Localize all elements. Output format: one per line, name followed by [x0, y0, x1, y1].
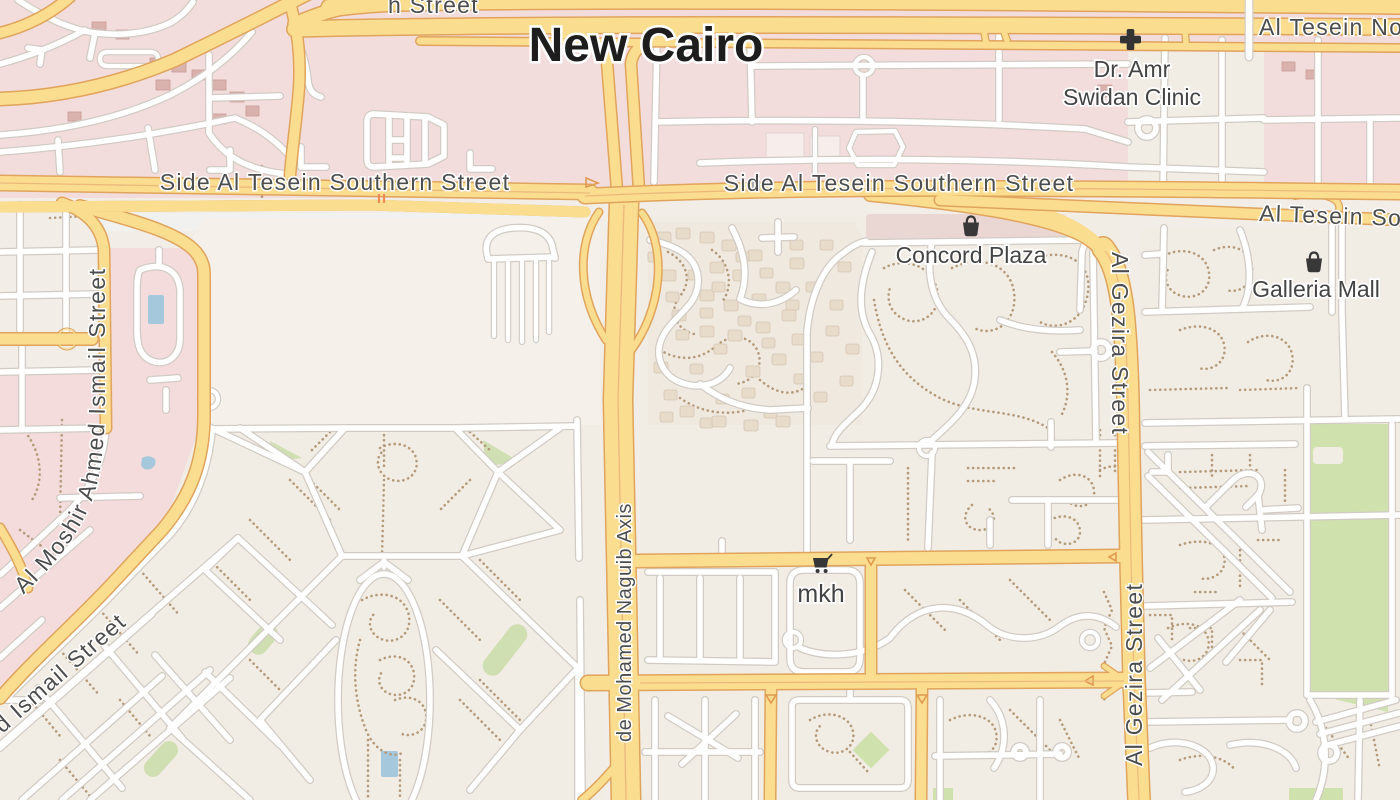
- svg-text:Galleria Mall: Galleria Mall: [1252, 276, 1380, 302]
- svg-text:Al Gezira Street: Al Gezira Street: [1107, 252, 1133, 435]
- svg-text:Dr. Amr: Dr. Amr: [1094, 56, 1171, 82]
- svg-text:Concord Plaza: Concord Plaza: [896, 242, 1047, 268]
- svg-text:h Street: h Street: [388, 0, 479, 18]
- svg-text:Side Al Tesein Southern Street: Side Al Tesein Southern Street: [160, 169, 511, 195]
- svg-text:New Cairo: New Cairo: [529, 19, 764, 72]
- svg-text:Al Gezira Street: Al Gezira Street: [1121, 583, 1147, 766]
- svg-text:Al Tesein Nor: Al Tesein Nor: [1259, 14, 1400, 40]
- svg-text:Side Al Tesein Southern Street: Side Al Tesein Southern Street: [724, 170, 1075, 196]
- svg-text:de Mohamed Naguib Axis: de Mohamed Naguib Axis: [614, 503, 636, 742]
- svg-text:Swidan Clinic: Swidan Clinic: [1063, 84, 1201, 110]
- svg-text:mkh: mkh: [797, 580, 844, 608]
